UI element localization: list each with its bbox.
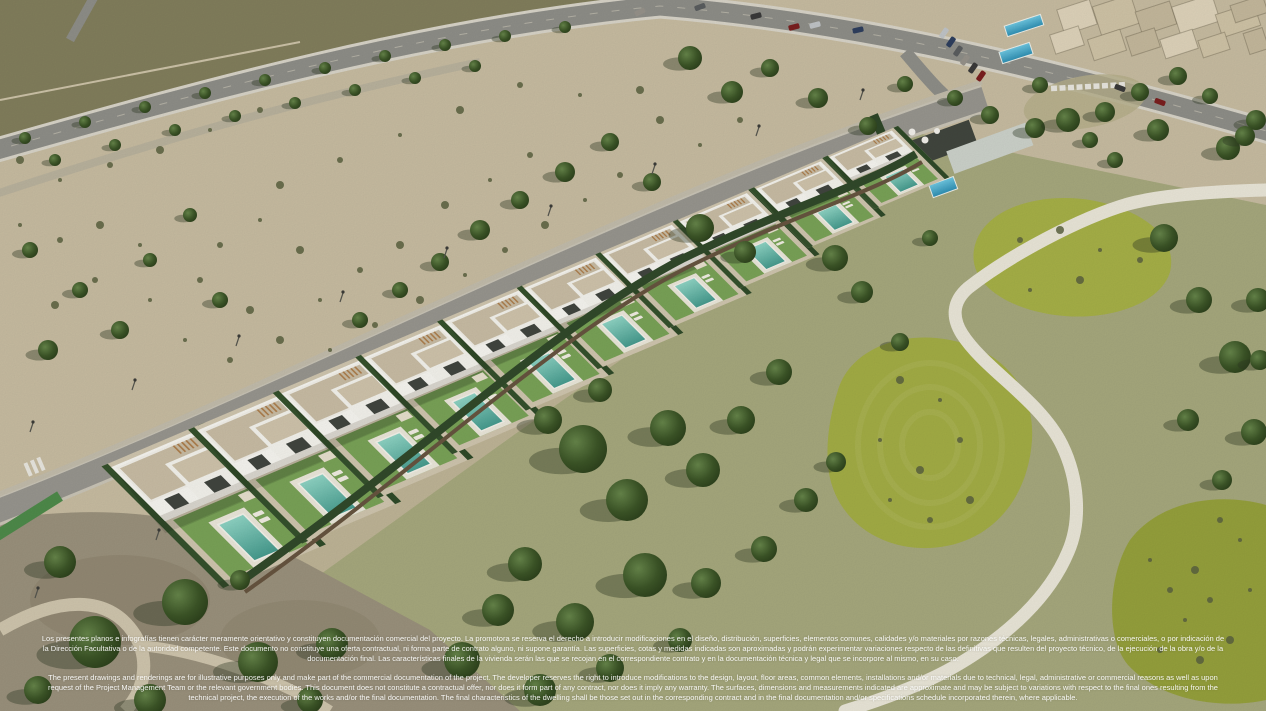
aerial-scene <box>0 0 1266 711</box>
photo-grain <box>0 0 1266 711</box>
legal-disclaimer: Los presentes planos e infografías tiene… <box>40 634 1226 703</box>
disclaimer-spanish: Los presentes planos e infografías tiene… <box>40 634 1226 664</box>
disclaimer-english: The present drawings and renderings are … <box>40 673 1226 703</box>
aerial-render-screenshot: Los presentes planos e infografías tiene… <box>0 0 1266 711</box>
